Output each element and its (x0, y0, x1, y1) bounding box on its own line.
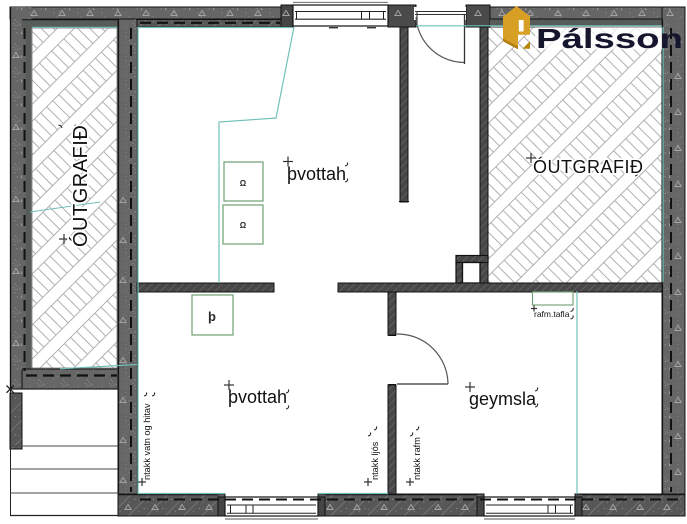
svg-text:Ω: Ω (240, 179, 247, 188)
svg-text:rafm.tafla: rafm.tafla (534, 309, 570, 319)
svg-text:þ: þ (208, 309, 216, 324)
svg-text:geymsla: geymsla (469, 389, 537, 409)
svg-text:þvottah: þvottah (287, 164, 346, 184)
svg-text:þvottah: þvottah (228, 387, 287, 407)
svg-text:Ω: Ω (240, 221, 247, 230)
svg-text:ntakk vatn og hitav: ntakk vatn og hitav (142, 403, 152, 480)
svg-text:Pálsson: Pálsson (536, 23, 683, 54)
svg-text:ÓUTGRAFIÐ: ÓUTGRAFIÐ (69, 125, 92, 247)
svg-text:ÓUTGRAFIÐ: ÓUTGRAFIÐ (533, 156, 644, 177)
svg-text:ntakk ljós: ntakk ljós (370, 441, 380, 480)
svg-text:ntakk rafm: ntakk rafm (412, 437, 422, 480)
